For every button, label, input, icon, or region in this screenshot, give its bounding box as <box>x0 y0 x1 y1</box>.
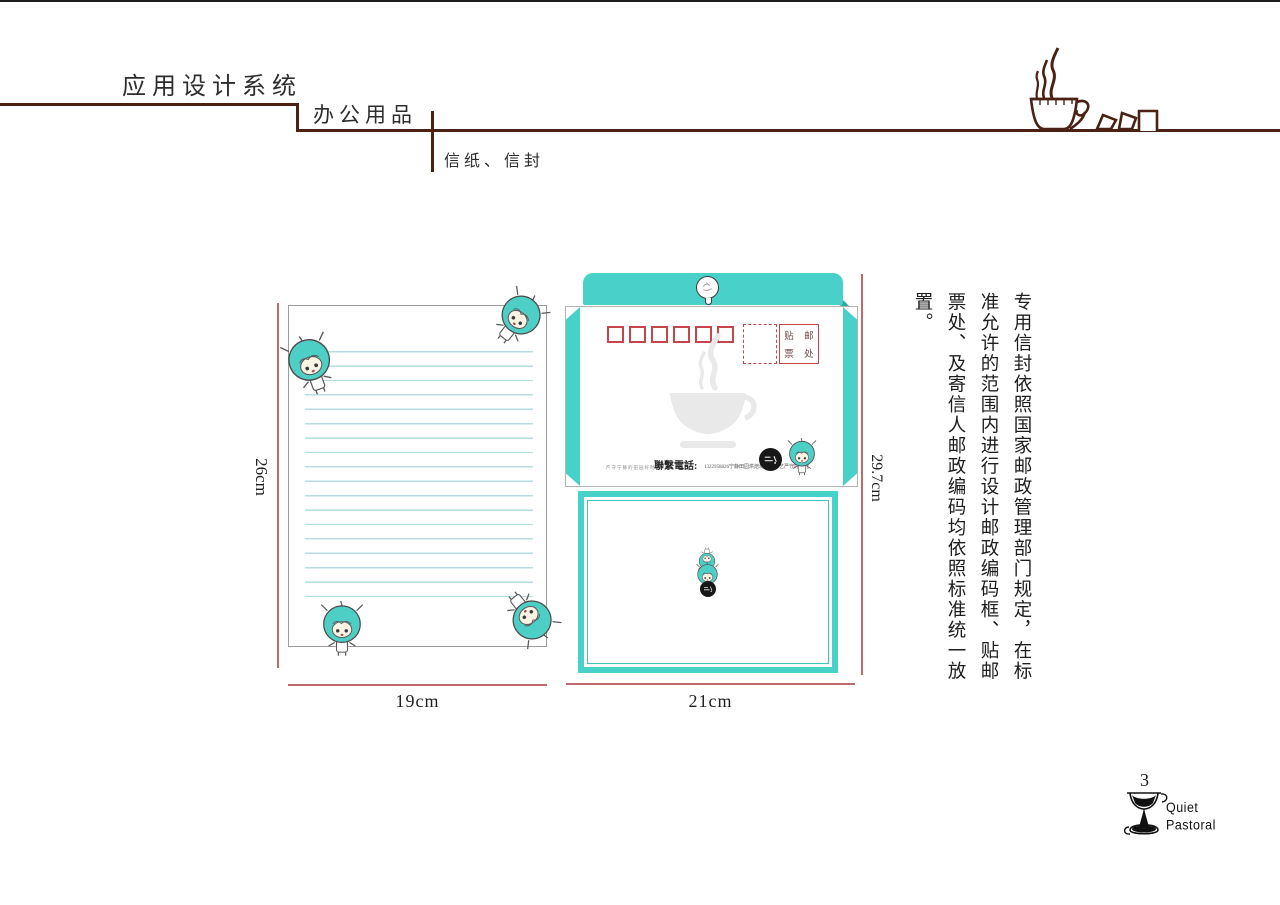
header-rule-step <box>296 103 299 132</box>
header-rule-left <box>0 103 298 106</box>
envelope-phone-label: 聯繫電話: <box>654 457 697 472</box>
stamp-text-line2: 票 处 <box>780 346 818 360</box>
stamp-text-line1: 贴 邮 <box>780 328 818 342</box>
letterhead-height-label: 26cm <box>253 449 271 505</box>
envelope-flap-badge <box>696 276 719 299</box>
envelope-height-dimension-line <box>861 274 863 675</box>
hourglass-cup-logo <box>1124 786 1170 836</box>
postal-code-box <box>629 326 646 343</box>
coffee-cup-icon <box>1000 40 1280 160</box>
design-description-text: 专用信封依照国家邮政管理部门规定，在标准允许的范围内进行设计邮政编码框、贴邮票处… <box>895 292 1037 684</box>
chibi-character <box>785 438 819 476</box>
envelope-small-note: 严守宁静的田园好时光 <box>606 465 661 471</box>
page-title: 应用设计系统 <box>122 66 302 101</box>
envelope-side-flap-right <box>843 307 857 486</box>
page-top-border <box>0 0 1280 2</box>
letterhead-width-label: 19cm <box>288 691 547 712</box>
brand-seal <box>759 448 782 471</box>
envelope-width-label: 21cm <box>566 691 855 712</box>
envelope-flap-badge-tail <box>705 298 712 305</box>
postal-code-box <box>607 326 624 343</box>
brand-line1: Quiet <box>1166 800 1216 817</box>
envelope-back <box>578 491 838 673</box>
envelope-width-dimension-line <box>566 683 855 685</box>
brand-seal <box>700 581 716 597</box>
brand-wordmark: Quiet Pastoral <box>1166 800 1216 834</box>
coffee-cup-watermark <box>658 333 758 463</box>
envelope-side-flap-left <box>566 307 580 486</box>
section-label: 办公用品 <box>313 99 417 129</box>
envelope-front: 贴 邮 票 处 严守宁静的田园好时光 聯繫電話: 1322958826宁静田园烘… <box>565 306 858 487</box>
header-divider <box>431 111 434 172</box>
letterhead-width-dimension-line <box>288 684 547 686</box>
brand-line2: Pastoral <box>1166 817 1216 834</box>
chibi-character <box>317 601 367 657</box>
subsection-label: 信纸、信封 <box>444 147 544 171</box>
envelope-height-label: 29.7cm <box>869 446 885 510</box>
stamp-area-box: 贴 邮 票 处 <box>779 324 819 364</box>
